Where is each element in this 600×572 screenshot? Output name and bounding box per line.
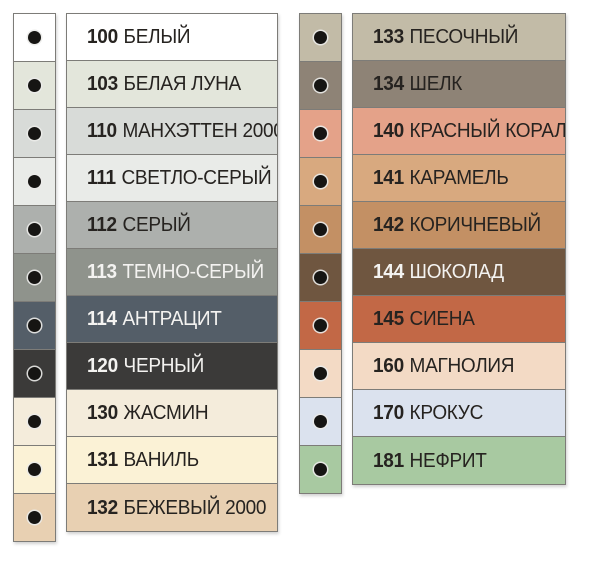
color-label-text: 120ЧЕРНЫЙ [87,356,204,376]
color-name: НЕФРИТ [410,450,487,472]
color-label-text: 100БЕЛЫЙ [87,27,190,47]
color-name: БЕЛЫЙ [124,26,191,48]
color-name: ШОКОЛАД [410,261,504,283]
color-swatch[interactable] [14,350,55,398]
selection-dot-icon [28,223,41,236]
color-label-row[interactable]: 142КОРИЧНЕВЫЙ [353,202,565,249]
color-name: ЖАСМИН [124,402,209,424]
color-name: СЕРЫЙ [123,214,191,236]
color-name: ШЕЛК [410,73,462,95]
color-code: 133 [373,26,404,48]
selection-dot-icon [28,271,41,284]
color-swatch[interactable] [300,398,341,446]
color-label-text: 140КРАСНЫЙ КОРАЛЛ [373,121,565,141]
color-code: 144 [373,261,404,283]
color-swatch[interactable] [14,110,55,158]
color-swatch[interactable] [14,254,55,302]
color-swatch[interactable] [300,302,341,350]
selection-dot-icon [314,463,327,476]
label-column-left: 100БЕЛЫЙ 103БЕЛАЯ ЛУНА 110МАНХЭТТЕН 2000… [66,13,278,532]
color-code: 112 [87,214,117,236]
color-label-text: 142КОРИЧНЕВЫЙ [373,215,541,235]
color-code: 111 [87,167,116,189]
color-label-row[interactable]: 103БЕЛАЯ ЛУНА [67,61,277,108]
color-label-row[interactable]: 114АНТРАЦИТ [67,296,277,343]
selection-dot-icon [314,271,327,284]
color-swatch[interactable] [300,446,341,493]
color-label-row[interactable]: 130ЖАСМИН [67,390,277,437]
color-code: 140 [373,120,404,142]
color-label-text: 114АНТРАЦИТ [87,309,222,329]
color-code: 145 [373,308,404,330]
color-swatch[interactable] [14,398,55,446]
selection-dot-icon [314,31,327,44]
color-label-text: 134ШЕЛК [373,74,462,94]
color-swatch[interactable] [14,446,55,494]
color-label-row[interactable]: 160МАГНОЛИЯ [353,343,565,390]
color-label-row[interactable]: 110МАНХЭТТЕН 2000 [67,108,277,155]
color-name: ВАНИЛЬ [124,449,199,471]
color-label-text: 141КАРАМЕЛЬ [373,168,509,188]
color-code: 181 [373,450,404,472]
color-swatch[interactable] [14,494,55,541]
color-label-text: 160МАГНОЛИЯ [373,356,514,376]
color-swatch[interactable] [300,158,341,206]
color-label-row[interactable]: 140КРАСНЫЙ КОРАЛЛ [353,108,565,155]
color-swatch[interactable] [14,62,55,110]
selection-dot-icon [28,31,41,44]
color-label-text: 181НЕФРИТ [373,451,487,471]
color-code: 160 [373,355,404,377]
color-label-text: 112СЕРЫЙ [87,215,191,235]
selection-dot-icon [314,79,327,92]
color-name: БЕЖЕВЫЙ 2000 [124,497,267,519]
label-column-right: 133ПЕСОЧНЫЙ 134ШЕЛК 140КРАСНЫЙ КОРАЛЛ 14… [352,13,566,485]
color-swatch[interactable] [14,206,55,254]
selection-dot-icon [28,415,41,428]
color-name: ПЕСОЧНЫЙ [410,26,519,48]
color-name: МАНХЭТТЕН 2000 [123,120,277,142]
color-label-text: 103БЕЛАЯ ЛУНА [87,74,241,94]
color-code: 110 [87,120,117,142]
color-label-row[interactable]: 112СЕРЫЙ [67,202,277,249]
color-code: 170 [373,402,404,424]
color-label-row[interactable]: 131ВАНИЛЬ [67,437,277,484]
color-swatch[interactable] [14,158,55,206]
color-label-text: 133ПЕСОЧНЫЙ [373,27,518,47]
color-label-text: 130ЖАСМИН [87,403,208,423]
color-code: 113 [87,261,117,283]
color-label-text: 110МАНХЭТТЕН 2000 [87,121,277,141]
color-label-text: 113ТЕМНО-СЕРЫЙ [87,262,264,282]
color-name: ТЕМНО-СЕРЫЙ [123,261,264,283]
color-name: СИЕНА [410,308,475,330]
color-name: АНТРАЦИТ [123,308,222,330]
color-name: ЧЕРНЫЙ [124,355,204,377]
selection-dot-icon [28,463,41,476]
color-label-text: 111СВЕТЛО-СЕРЫЙ [87,168,271,188]
color-swatch[interactable] [300,206,341,254]
color-label-row[interactable]: 120ЧЕРНЫЙ [67,343,277,390]
selection-dot-icon [314,415,327,428]
color-code: 134 [373,73,404,95]
color-label-text: 170КРОКУС [373,403,483,423]
selection-dot-icon [314,367,327,380]
color-name: КРОКУС [410,402,483,424]
selection-dot-icon [314,127,327,140]
color-label-row[interactable]: 133ПЕСОЧНЫЙ [353,14,565,61]
color-label-row[interactable]: 132БЕЖЕВЫЙ 2000 [67,484,277,531]
selection-dot-icon [28,319,41,332]
selection-dot-icon [28,511,41,524]
color-name: КОРИЧНЕВЫЙ [410,214,541,236]
color-code: 131 [87,449,118,471]
color-label-row[interactable]: 113ТЕМНО-СЕРЫЙ [67,249,277,296]
color-swatch[interactable] [300,254,341,302]
swatch-column-left [13,13,56,542]
color-code: 100 [87,26,118,48]
color-label-row[interactable]: 134ШЕЛК [353,61,565,108]
color-swatch[interactable] [14,14,55,62]
color-label-text: 144ШОКОЛАД [373,262,504,282]
selection-dot-icon [314,175,327,188]
selection-dot-icon [28,175,41,188]
color-label-row[interactable]: 170КРОКУС [353,390,565,437]
color-label-row[interactable]: 145СИЕНА [353,296,565,343]
color-swatch[interactable] [300,14,341,62]
color-label-row[interactable]: 111СВЕТЛО-СЕРЫЙ [67,155,277,202]
color-name: БЕЛАЯ ЛУНА [124,73,241,95]
color-swatch[interactable] [300,62,341,110]
color-swatch[interactable] [14,302,55,350]
selection-dot-icon [28,127,41,140]
color-swatch[interactable] [300,350,341,398]
color-name: КРАСНЫЙ КОРАЛЛ [410,120,565,142]
color-code: 141 [373,167,404,189]
color-code: 142 [373,214,404,236]
swatch-column-right [299,13,342,494]
selection-dot-icon [28,367,41,380]
color-code: 132 [87,497,118,519]
color-label-text: 131ВАНИЛЬ [87,450,199,470]
color-name: СВЕТЛО-СЕРЫЙ [121,167,271,189]
color-code: 103 [87,73,118,95]
color-code: 130 [87,402,118,424]
selection-dot-icon [28,79,41,92]
selection-dot-icon [314,319,327,332]
color-code: 120 [87,355,118,377]
color-code: 114 [87,308,117,330]
color-name: МАГНОЛИЯ [410,355,515,377]
color-label-row[interactable]: 141КАРАМЕЛЬ [353,155,565,202]
color-label-row[interactable]: 144ШОКОЛАД [353,249,565,296]
selection-dot-icon [314,223,327,236]
color-label-row[interactable]: 100БЕЛЫЙ [67,14,277,61]
grout-color-chart: 100БЕЛЫЙ 103БЕЛАЯ ЛУНА 110МАНХЭТТЕН 2000… [0,0,600,572]
color-swatch[interactable] [300,110,341,158]
color-label-text: 132БЕЖЕВЫЙ 2000 [87,498,266,518]
color-name: КАРАМЕЛЬ [410,167,509,189]
color-label-text: 145СИЕНА [373,309,475,329]
color-label-row[interactable]: 181НЕФРИТ [353,437,565,484]
